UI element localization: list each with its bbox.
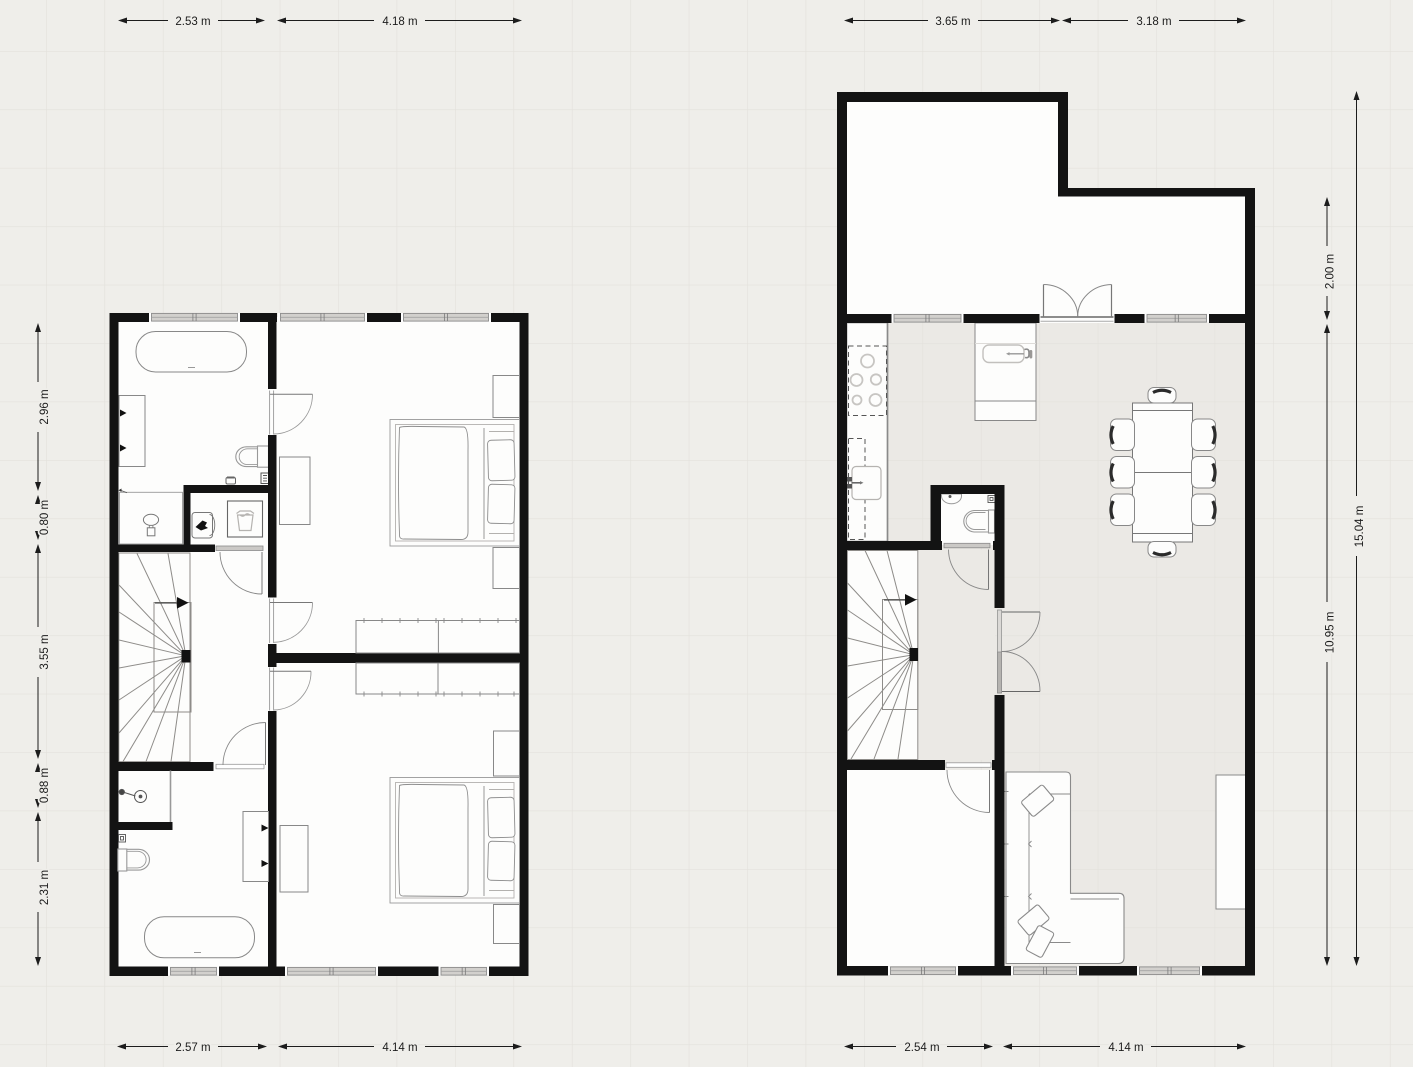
- svg-text:4.18 m: 4.18 m: [382, 16, 417, 28]
- svg-text:2.31 m: 2.31 m: [39, 870, 51, 905]
- svg-text:10.95 m: 10.95 m: [1325, 612, 1337, 654]
- svg-text:0.88 m: 0.88 m: [39, 768, 51, 803]
- svg-text:3.55 m: 3.55 m: [39, 634, 51, 669]
- svg-text:2.57 m: 2.57 m: [175, 1042, 210, 1054]
- svg-text:0.80 m: 0.80 m: [39, 500, 51, 535]
- svg-text:2.54 m: 2.54 m: [904, 1042, 939, 1054]
- svg-text:4.14 m: 4.14 m: [382, 1042, 417, 1054]
- svg-text:2.00 m: 2.00 m: [1325, 254, 1337, 289]
- svg-text:3.18 m: 3.18 m: [1136, 16, 1171, 28]
- svg-text:3.65 m: 3.65 m: [935, 16, 970, 28]
- svg-text:2.53 m: 2.53 m: [175, 16, 210, 28]
- svg-text:4.14 m: 4.14 m: [1108, 1042, 1143, 1054]
- svg-text:2.96 m: 2.96 m: [39, 389, 51, 424]
- svg-text:15.04 m: 15.04 m: [1354, 506, 1366, 548]
